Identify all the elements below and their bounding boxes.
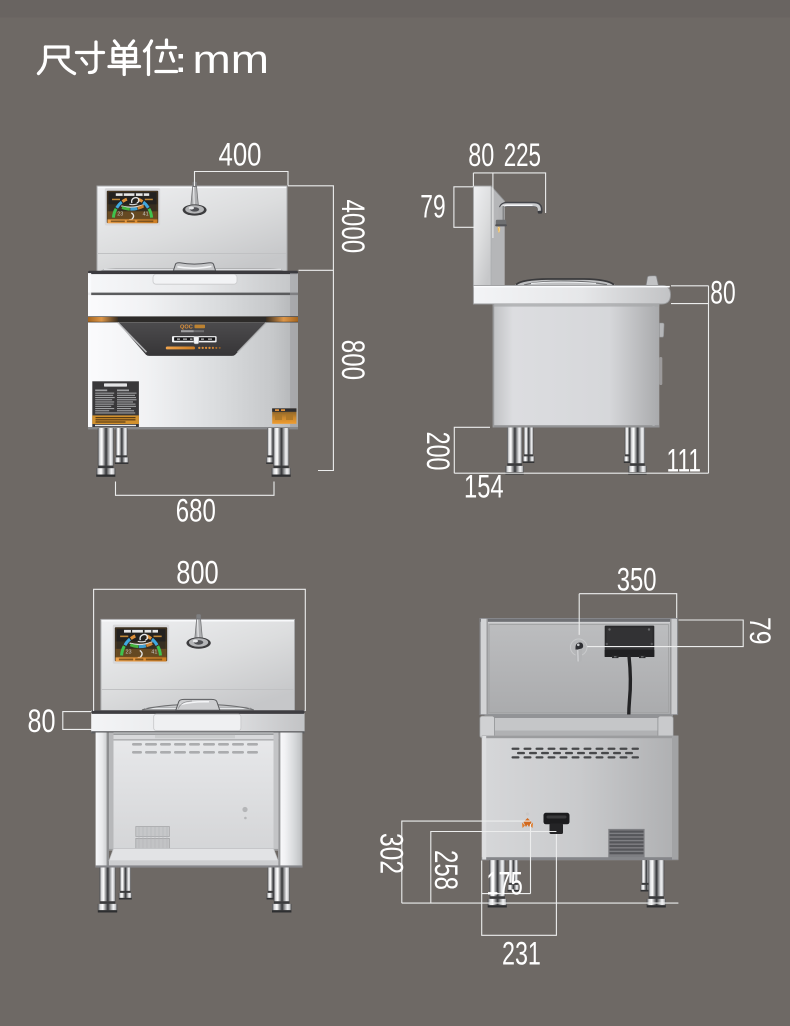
svg-text:111: 111 bbox=[667, 443, 702, 479]
svg-text:175: 175 bbox=[486, 866, 522, 902]
svg-text:80: 80 bbox=[28, 703, 56, 739]
svg-text:400: 400 bbox=[219, 137, 262, 173]
svg-text:231: 231 bbox=[502, 936, 541, 972]
svg-text:350: 350 bbox=[617, 561, 657, 597]
svg-text:mm: mm bbox=[193, 38, 270, 82]
svg-text:258: 258 bbox=[428, 850, 464, 890]
svg-text:80: 80 bbox=[710, 275, 735, 311]
svg-text:680: 680 bbox=[176, 493, 216, 529]
svg-text:302: 302 bbox=[373, 833, 409, 874]
svg-text:200: 200 bbox=[420, 432, 456, 471]
svg-text:800: 800 bbox=[176, 555, 219, 591]
svg-text:80: 80 bbox=[468, 137, 494, 173]
svg-text:4000: 4000 bbox=[335, 200, 371, 254]
svg-text:225: 225 bbox=[504, 137, 541, 173]
svg-text:154: 154 bbox=[464, 469, 504, 505]
svg-text:79: 79 bbox=[743, 617, 776, 645]
svg-text:79: 79 bbox=[420, 189, 445, 225]
svg-text:800: 800 bbox=[335, 340, 371, 380]
svg-text:QOC: QOC bbox=[180, 325, 193, 331]
